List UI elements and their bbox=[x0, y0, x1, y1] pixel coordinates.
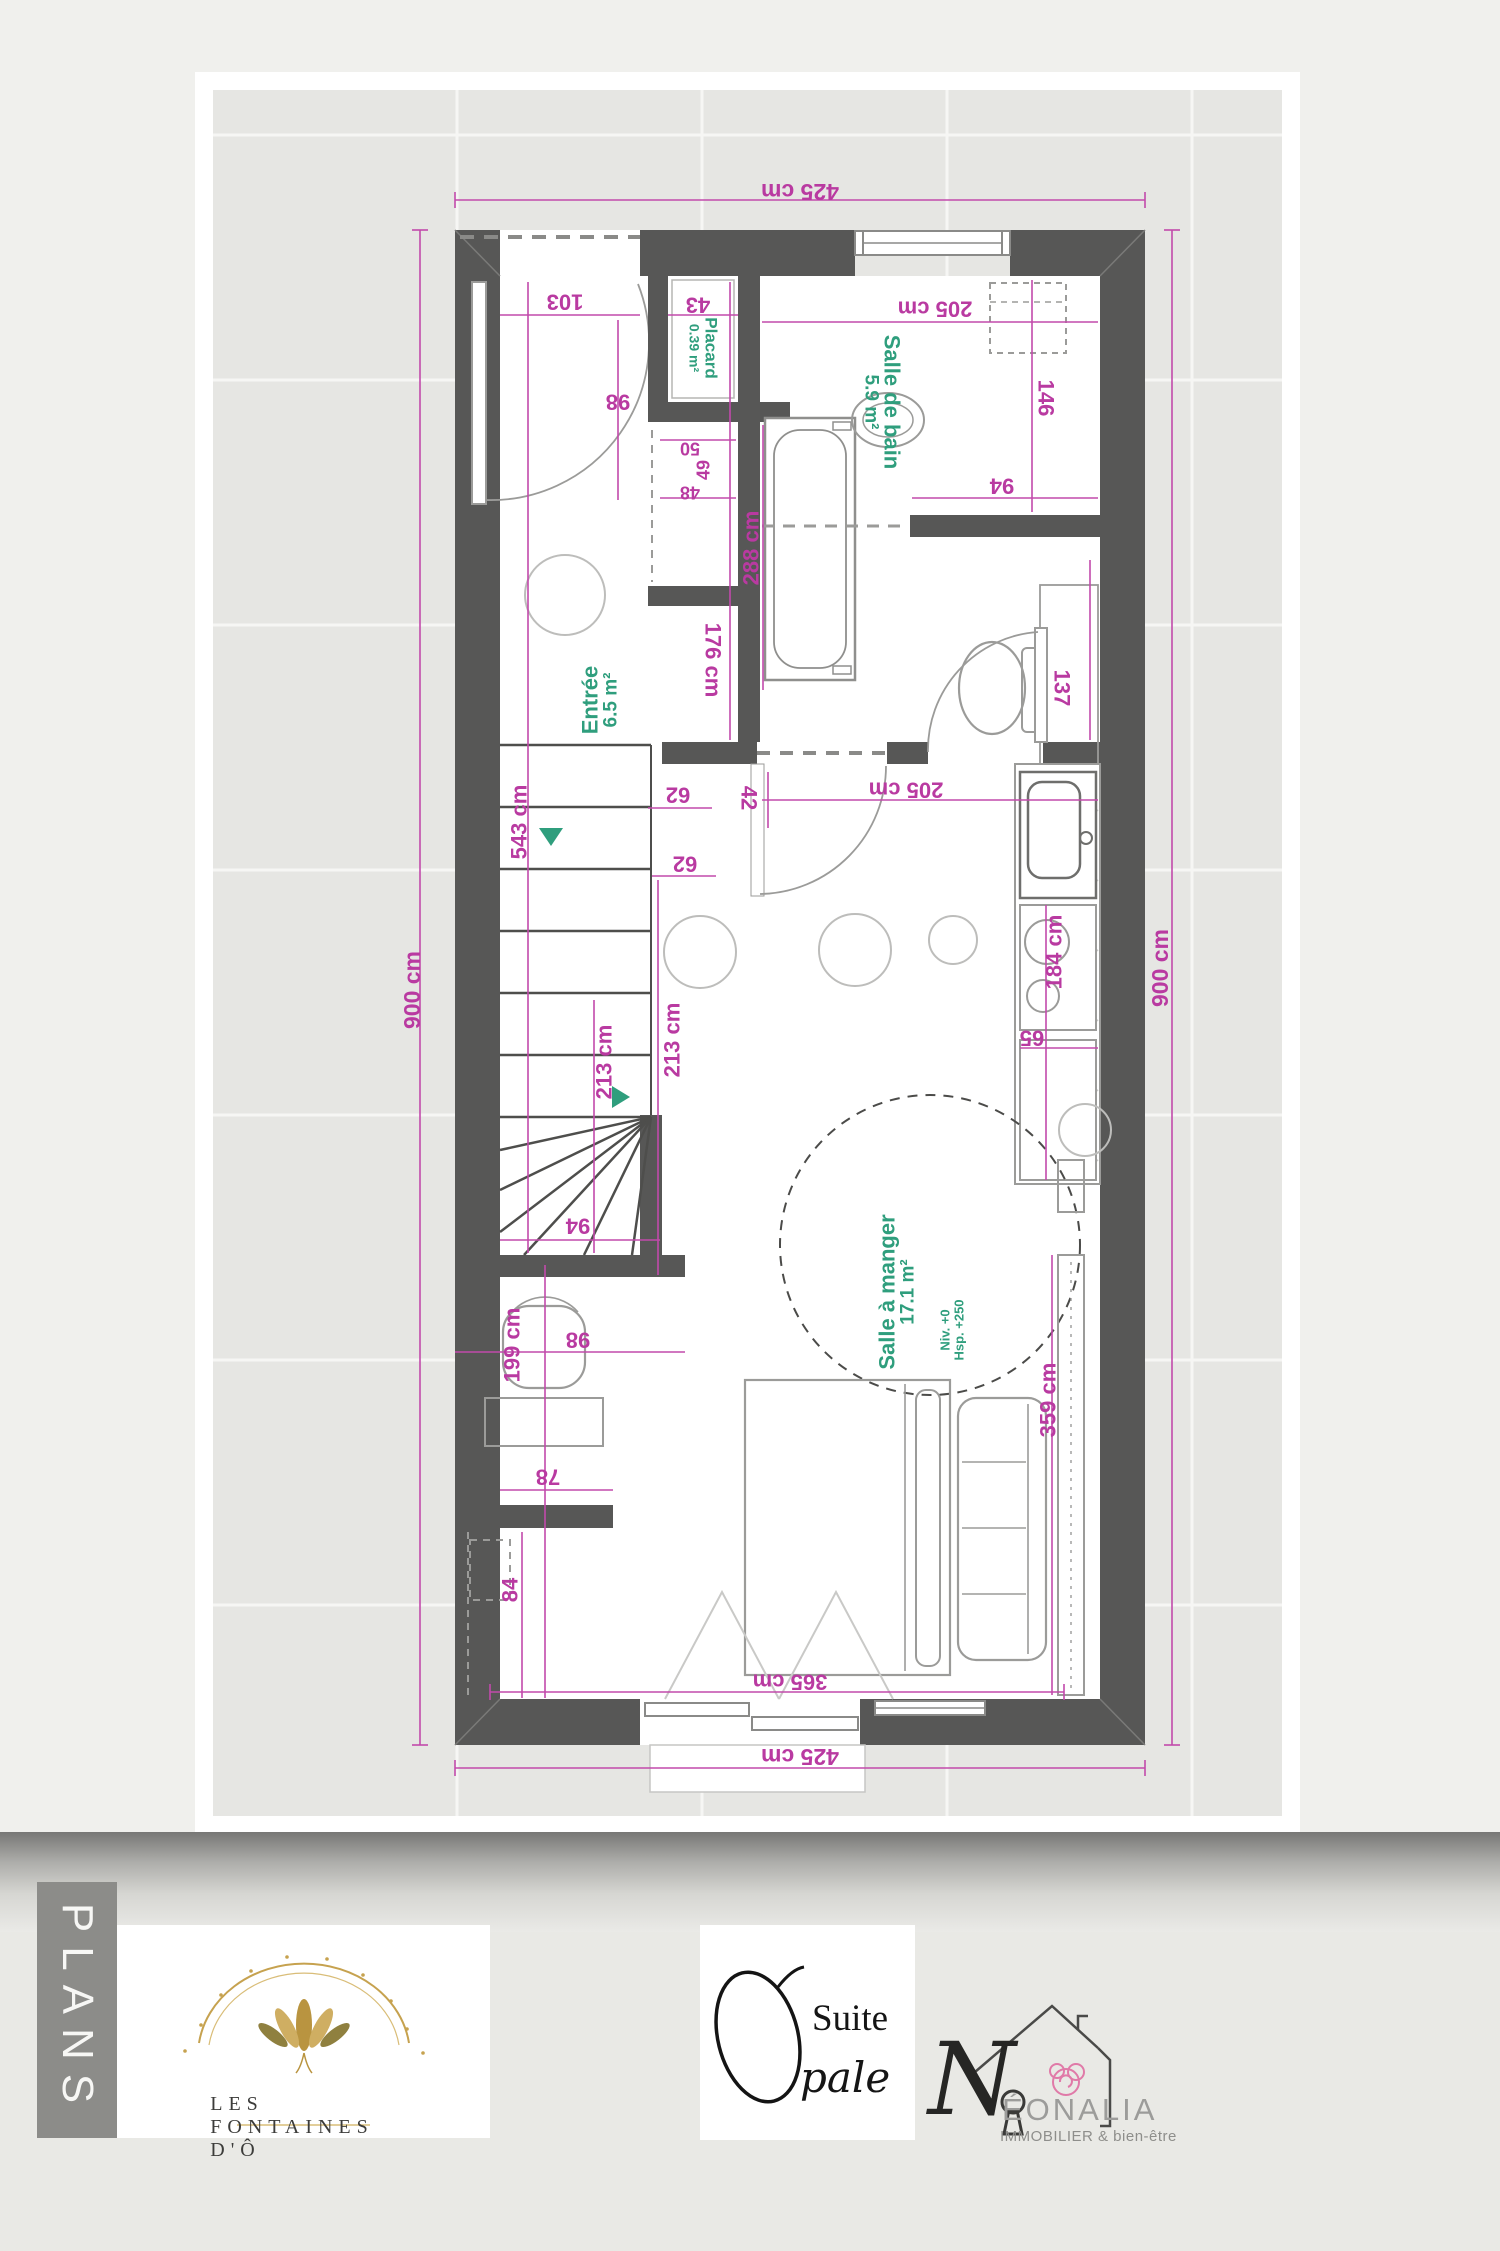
pale-word: pale bbox=[800, 2053, 890, 2102]
brochure-page: 425 cm 425 cm 900 cm 900 cm 103 98 43 20… bbox=[0, 0, 1500, 2251]
fontaines-card: LES FONTAINES D'Ô bbox=[117, 1925, 490, 2138]
suite-word: Suite bbox=[812, 1997, 888, 2040]
kitchen bbox=[1015, 764, 1100, 1184]
bathtub bbox=[765, 418, 855, 680]
plans-label: PLANS bbox=[52, 1903, 102, 2117]
window-top bbox=[855, 231, 1010, 255]
leaf-fan-icon bbox=[255, 1999, 353, 2073]
page-shadow bbox=[0, 1832, 1500, 1932]
window-bottom-small bbox=[875, 1701, 985, 1715]
plans-tab: PLANS bbox=[37, 1882, 117, 2138]
neonalia-tagline: IMMOBILIER & bien-être bbox=[1000, 2128, 1177, 2145]
fontaines-brand-text: LES FONTAINES D'Ô bbox=[210, 2093, 397, 2162]
neonalia-name: ÉONALIA bbox=[1002, 2092, 1157, 2128]
suite-opale-card: Suite pale bbox=[700, 1925, 915, 2140]
